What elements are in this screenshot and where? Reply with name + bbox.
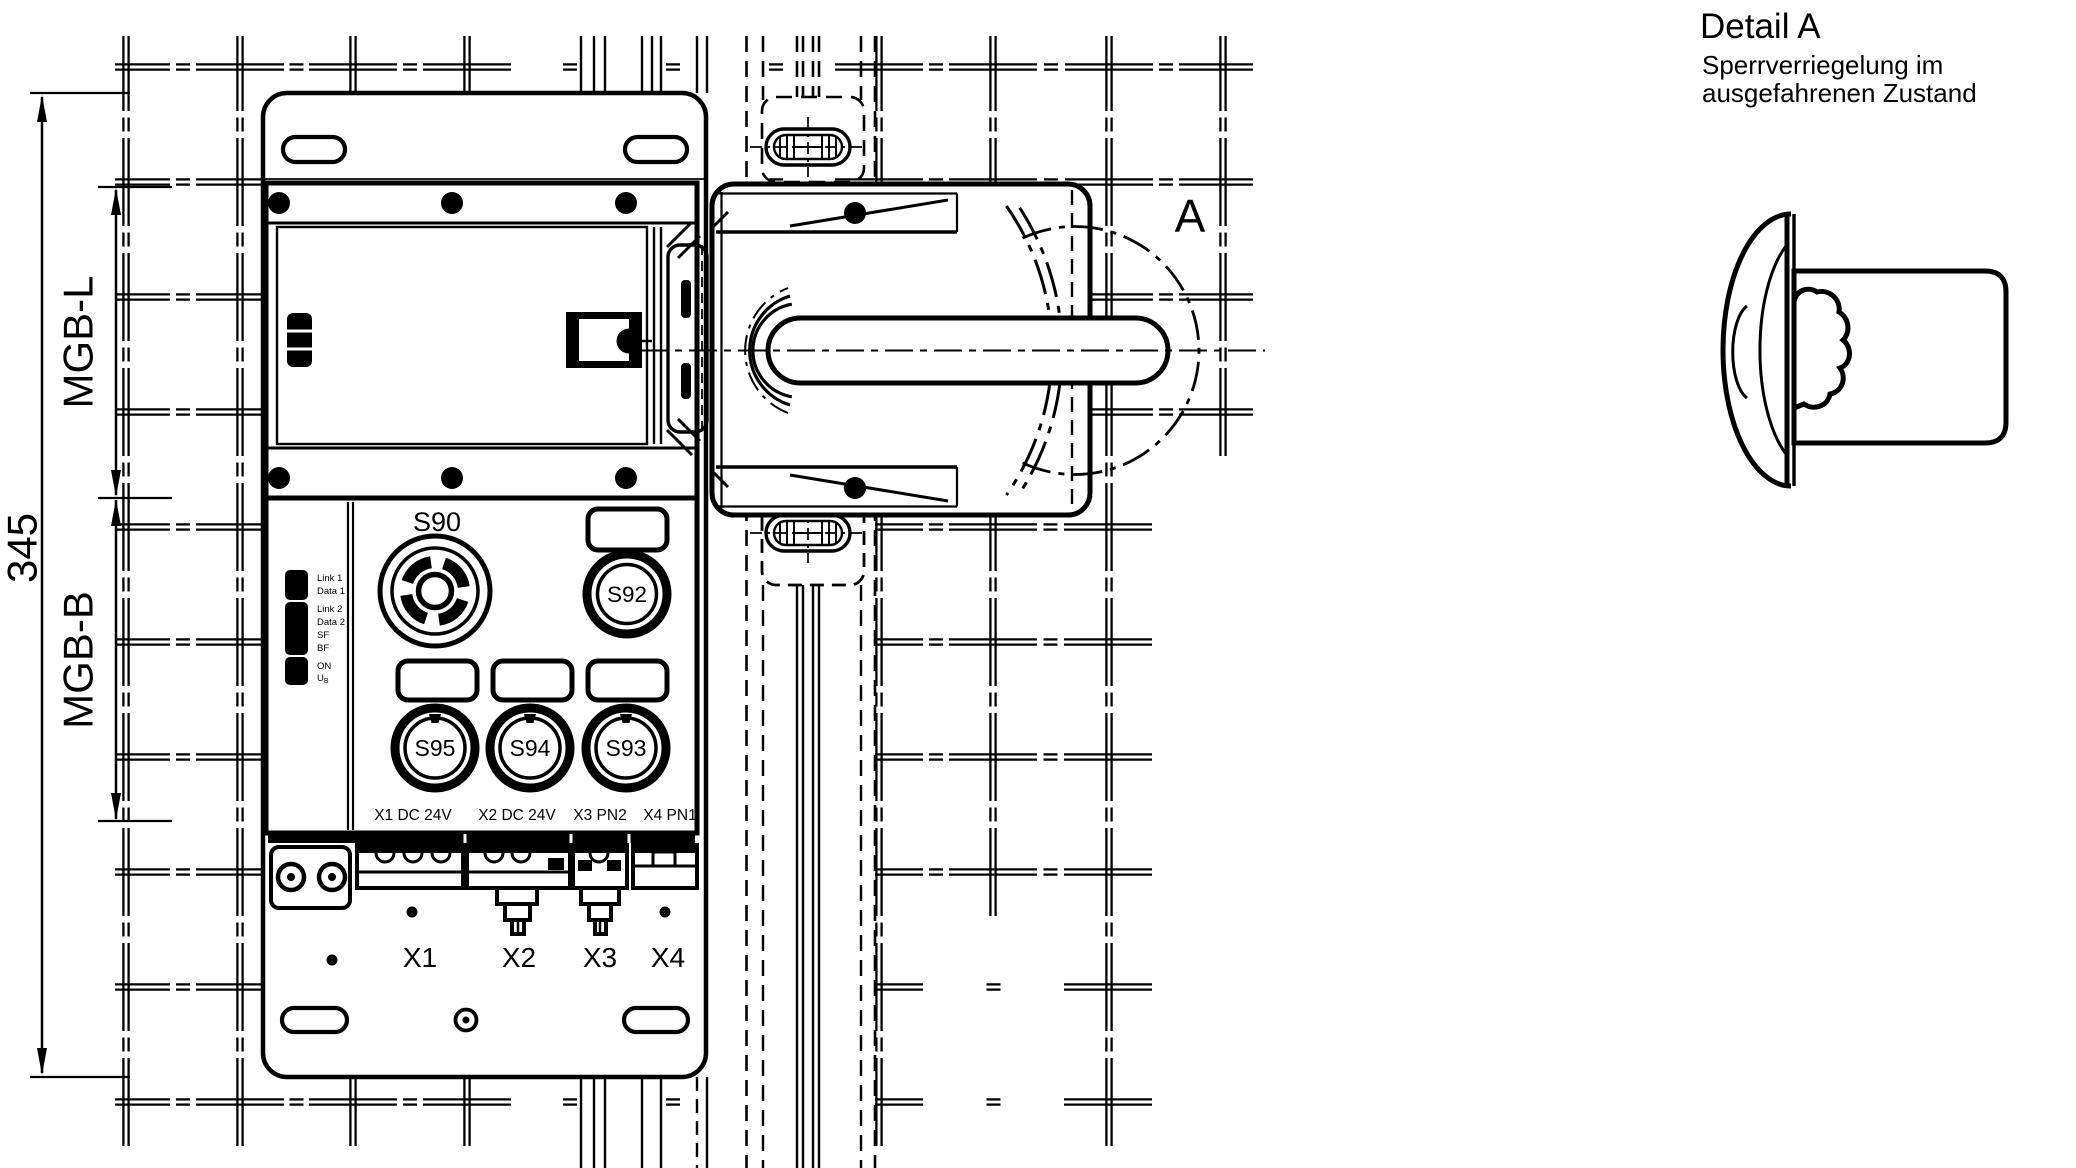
led-label: ON — [317, 661, 331, 672]
port-caption-row: X1 DC 24V X2 DC 24V X3 PN2 X4 PN1 — [374, 807, 696, 824]
mgb-installation-drawing: 345 MGB-L MGB-B — [0, 0, 2076, 1168]
slot-hole — [283, 137, 345, 162]
port-caption: X4 PN1 — [643, 807, 696, 824]
dim-overall-label: 345 — [0, 513, 46, 583]
pin-cloud-cutout — [1794, 289, 1849, 408]
connector-label: X1 — [403, 942, 437, 973]
connector-label: X3 — [583, 942, 617, 973]
led-label: Link 1 — [317, 573, 342, 584]
led-blocks — [285, 570, 308, 685]
detail-view-title: Detail A — [1700, 7, 1821, 46]
led-label: Data 2 — [317, 617, 345, 628]
button-s95-label: S95 — [415, 735, 456, 761]
technical-drawing-page: 345 MGB-L MGB-B — [0, 0, 2076, 1168]
led-label: Link 2 — [317, 604, 342, 615]
rivet — [407, 907, 418, 918]
port-caption: X3 PN2 — [573, 807, 626, 824]
rivet — [327, 955, 338, 966]
dim-mgb-l-label: MGB-L — [55, 275, 102, 408]
slot-hole — [282, 1008, 347, 1032]
port-caption: X2 DC 24V — [478, 807, 556, 824]
rivet — [660, 907, 671, 918]
detail-callout-marker: A — [1175, 190, 1206, 242]
button-s93-label: S93 — [606, 735, 647, 761]
connector-label: X2 — [502, 942, 536, 973]
detail-view-caption-2: ausgefahrenen Zustand — [1702, 78, 1977, 108]
led-label: SF — [317, 630, 329, 641]
locking-module-mgb-l — [266, 183, 697, 498]
dim-mgb-b-label: MGB-B — [55, 591, 102, 729]
port-caption: X1 DC 24V — [374, 807, 452, 824]
button-s94-label: S94 — [510, 735, 551, 761]
connector-label: X4 — [651, 942, 685, 973]
button-s92-label: S92 — [607, 582, 647, 607]
slot-hole — [625, 137, 687, 162]
led-label: Data 1 — [317, 586, 345, 597]
door-post-lower — [747, 503, 876, 1168]
led-label: BF — [317, 643, 329, 654]
detail-view-caption-1: Sperrverriegelung im — [1702, 50, 1943, 80]
type-label-block — [287, 313, 312, 367]
slot-hole — [624, 1008, 688, 1032]
estop-label: S90 — [413, 507, 461, 537]
lock-state-window — [566, 312, 652, 368]
